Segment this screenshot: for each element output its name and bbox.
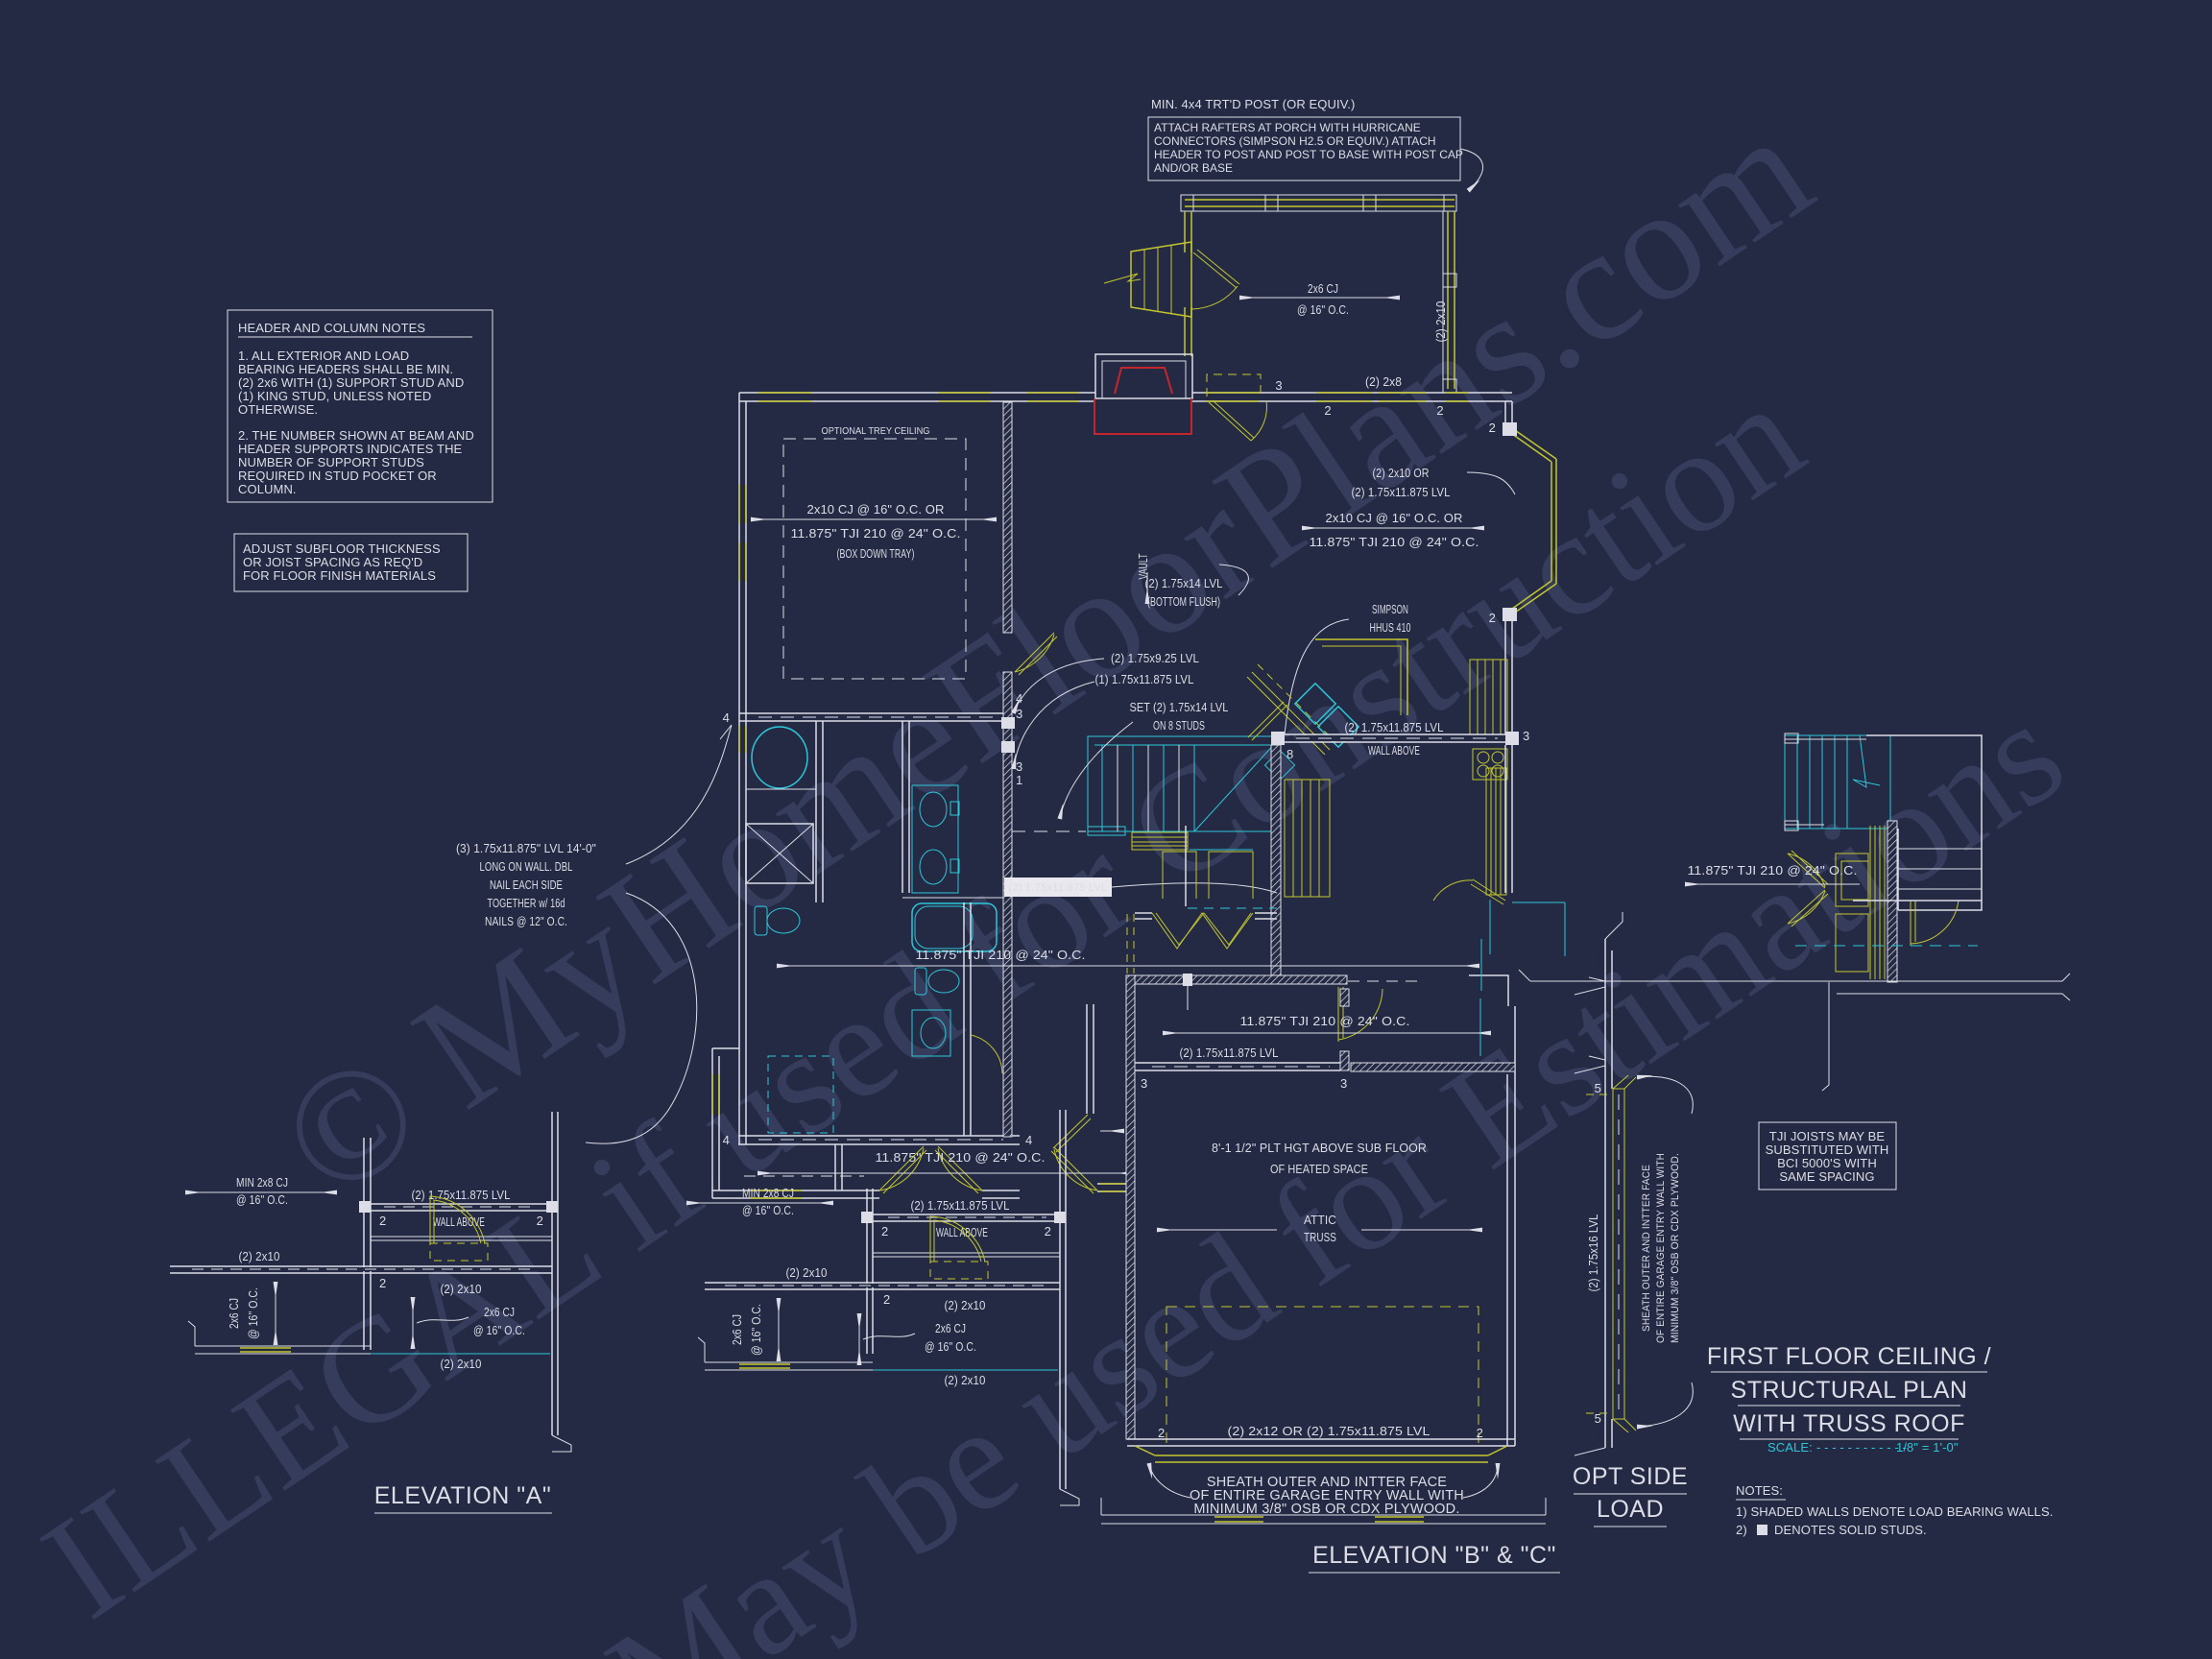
svg-text:CONNECTORS (SIMPSON H2.5 OR EQ: CONNECTORS (SIMPSON H2.5 OR EQUIV.) ATTA… bbox=[1154, 134, 1436, 148]
svg-text:(2) 1.75x11.875 LVL: (2) 1.75x11.875 LVL bbox=[1345, 720, 1444, 734]
svg-text:HEADER AND COLUMN NOTES: HEADER AND COLUMN NOTES bbox=[238, 321, 425, 335]
svg-text:TOGETHER w/ 16d: TOGETHER w/ 16d bbox=[488, 896, 565, 910]
svg-text:2x6 CJ: 2x6 CJ bbox=[227, 1298, 241, 1329]
svg-text:@ 16" O.C.: @ 16" O.C. bbox=[473, 1323, 525, 1337]
svg-text:BCI 5000'S WITH: BCI 5000'S WITH bbox=[1777, 1156, 1877, 1170]
svg-text:ELEVATION "B" & "C": ELEVATION "B" & "C" bbox=[1312, 1542, 1556, 1569]
svg-text:@ 16" O.C.: @ 16" O.C. bbox=[246, 1287, 260, 1339]
svg-text:OF HEATED SPACE: OF HEATED SPACE bbox=[1270, 1162, 1368, 1176]
svg-text:11.875" TJI 210 @ 24" O.C.: 11.875" TJI 210 @ 24" O.C. bbox=[791, 526, 961, 541]
svg-text:FOR FLOOR FINISH MATERIALS: FOR FLOOR FINISH MATERIALS bbox=[243, 568, 436, 583]
svg-text:@ 16" O.C.: @ 16" O.C. bbox=[749, 1304, 763, 1356]
svg-text:HEADER TO POST AND POST TO BAS: HEADER TO POST AND POST TO BASE WITH POS… bbox=[1154, 148, 1463, 161]
svg-text:(2) 1.75x9.25 LVL: (2) 1.75x9.25 LVL bbox=[1111, 651, 1199, 665]
svg-text:SUBSTITUTED WITH: SUBSTITUTED WITH bbox=[1766, 1142, 1889, 1157]
svg-text:WITH TRUSS ROOF: WITH TRUSS ROOF bbox=[1733, 1410, 1965, 1437]
svg-text:11.875" TJI 210 @ 24" O.C.: 11.875" TJI 210 @ 24" O.C. bbox=[876, 1150, 1046, 1165]
svg-text:SHEATH OUTER AND INTTER FACE: SHEATH OUTER AND INTTER FACE bbox=[1641, 1165, 1652, 1332]
svg-text:2: 2 bbox=[1489, 421, 1496, 435]
svg-text:4: 4 bbox=[1025, 1133, 1032, 1147]
svg-text:MIN 2x8 CJ: MIN 2x8 CJ bbox=[742, 1186, 794, 1200]
svg-text:AND/OR BASE: AND/OR BASE bbox=[1154, 161, 1233, 175]
svg-text:@ 16" O.C.: @ 16" O.C. bbox=[1297, 302, 1349, 317]
svg-text:COLUMN.: COLUMN. bbox=[238, 482, 297, 496]
svg-text:(2) 2x12 OR (2) 1.75x11.875 LV: (2) 2x12 OR (2) 1.75x11.875 LVL bbox=[1228, 1424, 1431, 1438]
svg-text:(2) 2x10: (2) 2x10 bbox=[786, 1265, 828, 1280]
svg-text:ON 8 STUDS: ON 8 STUDS bbox=[1153, 718, 1205, 733]
svg-text:(2) 1.75x11.875 LVL: (2) 1.75x11.875 LVL bbox=[412, 1188, 511, 1202]
svg-text:@ 16" O.C.: @ 16" O.C. bbox=[236, 1192, 288, 1207]
svg-text:11.875" TJI 210 @ 24" O.C.: 11.875" TJI 210 @ 24" O.C. bbox=[1240, 1014, 1410, 1028]
svg-text:2x6 CJ: 2x6 CJ bbox=[1308, 281, 1338, 296]
svg-text:(2) 1.75x14 LVL: (2) 1.75x14 LVL bbox=[1145, 576, 1223, 590]
svg-text:STRUCTURAL PLAN: STRUCTURAL PLAN bbox=[1731, 1377, 1968, 1404]
svg-text:(2) 2x10: (2) 2x10 bbox=[945, 1298, 986, 1312]
svg-text:2: 2 bbox=[379, 1276, 386, 1290]
svg-text:2): 2) bbox=[1736, 1523, 1747, 1537]
svg-text:2: 2 bbox=[1158, 1426, 1165, 1440]
svg-text:(3) 1.75x11.875" LVL 14'-0": (3) 1.75x11.875" LVL 14'-0" bbox=[456, 841, 596, 855]
svg-text:11.875" TJI 210 @ 24" O.C.: 11.875" TJI 210 @ 24" O.C. bbox=[1310, 535, 1479, 549]
svg-text:ATTIC: ATTIC bbox=[1304, 1213, 1336, 1227]
svg-text:4: 4 bbox=[723, 710, 730, 725]
svg-text:(2) 1.75x11.875 LVL: (2) 1.75x11.875 LVL bbox=[1009, 882, 1108, 894]
svg-text:8: 8 bbox=[1286, 747, 1293, 761]
svg-text:2. THE NUMBER SHOWN AT BEAM AN: 2. THE NUMBER SHOWN AT BEAM AND bbox=[238, 428, 474, 443]
svg-text:ATTACH RAFTERS AT PORCH WITH H: ATTACH RAFTERS AT PORCH WITH HURRICANE bbox=[1154, 121, 1421, 134]
svg-text:DENOTES SOLID STUDS.: DENOTES SOLID STUDS. bbox=[1774, 1523, 1927, 1537]
svg-text:1: 1 bbox=[1016, 773, 1022, 787]
svg-text:2x6 CJ: 2x6 CJ bbox=[935, 1321, 966, 1335]
svg-text:2: 2 bbox=[537, 1214, 543, 1228]
svg-text:HEADER SUPPORTS INDICATES THE: HEADER SUPPORTS INDICATES THE bbox=[238, 442, 463, 456]
svg-text:(2) 1.75x11.875 LVL: (2) 1.75x11.875 LVL bbox=[1180, 1046, 1279, 1060]
svg-text:2: 2 bbox=[379, 1214, 386, 1228]
svg-text:SCALE:: SCALE: bbox=[1767, 1440, 1813, 1455]
svg-text:5: 5 bbox=[1595, 1081, 1601, 1095]
svg-text:@ 16" O.C.: @ 16" O.C. bbox=[925, 1339, 976, 1354]
svg-text:NAILS @ 12" O.C.: NAILS @ 12" O.C. bbox=[485, 914, 567, 928]
svg-text:SET (2) 1.75x14 LVL: SET (2) 1.75x14 LVL bbox=[1130, 700, 1229, 714]
svg-text:2: 2 bbox=[1045, 1224, 1051, 1238]
svg-text:WALL ABOVE: WALL ABOVE bbox=[1368, 743, 1420, 757]
svg-text:2x10 CJ @ 16" O.C. OR: 2x10 CJ @ 16" O.C. OR bbox=[807, 502, 945, 517]
svg-text:2: 2 bbox=[881, 1224, 888, 1238]
svg-text:ELEVATION "A": ELEVATION "A" bbox=[374, 1482, 551, 1509]
svg-text:(2) 2x8: (2) 2x8 bbox=[1365, 374, 1402, 389]
svg-text:LOAD: LOAD bbox=[1597, 1496, 1664, 1523]
svg-text:2: 2 bbox=[1324, 403, 1331, 418]
svg-text:BEARING HEADERS SHALL BE MIN.: BEARING HEADERS SHALL BE MIN. bbox=[238, 362, 453, 376]
svg-text:2x6 CJ: 2x6 CJ bbox=[484, 1305, 515, 1319]
svg-text:(BOX DOWN TRAY): (BOX DOWN TRAY) bbox=[837, 546, 915, 561]
svg-text:1. ALL EXTERIOR AND LOAD: 1. ALL EXTERIOR AND LOAD bbox=[238, 349, 409, 363]
svg-text:(2) 1.75x11.875 LVL: (2) 1.75x11.875 LVL bbox=[1352, 485, 1451, 499]
svg-text:3: 3 bbox=[1016, 759, 1022, 774]
svg-text:(2) 2x6 WITH (1) SUPPORT STUD: (2) 2x6 WITH (1) SUPPORT STUD AND bbox=[238, 375, 464, 390]
svg-text:(1) KING STUD, UNLESS NOTED: (1) KING STUD, UNLESS NOTED bbox=[238, 389, 431, 403]
svg-text:2: 2 bbox=[1489, 611, 1496, 625]
svg-text:1/8" = 1'-0": 1/8" = 1'-0" bbox=[1896, 1440, 1959, 1455]
svg-text:8'-1 1/2" PLT HGT ABOVE SUB FL: 8'-1 1/2" PLT HGT ABOVE SUB FLOOR bbox=[1212, 1141, 1427, 1155]
svg-text:NUMBER OF SUPPORT STUDS: NUMBER OF SUPPORT STUDS bbox=[238, 455, 424, 469]
svg-text:3: 3 bbox=[1016, 707, 1022, 721]
svg-text:(2) 2x10: (2) 2x10 bbox=[239, 1249, 280, 1263]
svg-text:(BOTTOM FLUSH): (BOTTOM FLUSH) bbox=[1147, 594, 1220, 609]
svg-text:OF ENTIRE GARAGE ENTRY WALL WI: OF ENTIRE GARAGE ENTRY WALL WITH bbox=[1655, 1153, 1667, 1343]
svg-text:- - - - - - - - - - - -: - - - - - - - - - - - - bbox=[1816, 1440, 1907, 1455]
svg-text:(2) 2x10: (2) 2x10 bbox=[441, 1357, 482, 1371]
svg-text:3: 3 bbox=[1523, 729, 1529, 743]
svg-text:TRUSS: TRUSS bbox=[1304, 1230, 1336, 1244]
svg-text:4: 4 bbox=[723, 1133, 730, 1147]
svg-text:LONG ON WALL. DBL: LONG ON WALL. DBL bbox=[480, 859, 573, 874]
svg-text:(2) 1.75x11.875 LVL: (2) 1.75x11.875 LVL bbox=[911, 1198, 1010, 1213]
svg-text:FIRST FLOOR CEILING /: FIRST FLOOR CEILING / bbox=[1707, 1343, 1991, 1370]
svg-text:(2) 1.75x16 LVL: (2) 1.75x16 LVL bbox=[1586, 1214, 1600, 1292]
svg-text:HHUS 410: HHUS 410 bbox=[1370, 620, 1411, 635]
svg-text:SIMPSON: SIMPSON bbox=[1372, 602, 1408, 616]
svg-text:1) SHADED WALLS DENOTE LOAD BE: 1) SHADED WALLS DENOTE LOAD BEARING WALL… bbox=[1736, 1504, 2053, 1519]
svg-text:(1) 1.75x11.875 LVL: (1) 1.75x11.875 LVL bbox=[1095, 672, 1194, 686]
svg-text:MINIMUM 3/8" OSB OR CDX PLYWOO: MINIMUM 3/8" OSB OR CDX PLYWOOD. bbox=[1193, 1502, 1459, 1517]
svg-text:OTHERWISE.: OTHERWISE. bbox=[238, 402, 318, 417]
svg-text:(2) 2x10: (2) 2x10 bbox=[945, 1373, 986, 1387]
svg-text:(2) 2x10: (2) 2x10 bbox=[1433, 301, 1448, 343]
svg-text:(2) 2x10 OR: (2) 2x10 OR bbox=[1373, 466, 1430, 480]
svg-text:REQUIRED IN STUD POCKET OR: REQUIRED IN STUD POCKET OR bbox=[238, 469, 437, 483]
svg-text:2: 2 bbox=[883, 1292, 890, 1307]
svg-text:2: 2 bbox=[1477, 1426, 1483, 1440]
svg-text:2: 2 bbox=[1436, 403, 1443, 418]
svg-text:5: 5 bbox=[1595, 1411, 1601, 1426]
svg-text:OPTIONAL TREY CEILING: OPTIONAL TREY CEILING bbox=[822, 426, 930, 437]
svg-text:11.875" TJI 210 @ 24" O.C.: 11.875" TJI 210 @ 24" O.C. bbox=[916, 948, 1086, 962]
svg-text:MIN. 4x4 TRT'D POST (OR EQUIV.: MIN. 4x4 TRT'D POST (OR EQUIV.) bbox=[1151, 97, 1355, 111]
svg-text:NAIL EACH SIDE: NAIL EACH SIDE bbox=[490, 878, 563, 892]
svg-text:3: 3 bbox=[1275, 378, 1282, 393]
svg-text:@ 16" O.C.: @ 16" O.C. bbox=[742, 1203, 794, 1217]
svg-text:11.875" TJI 210 @ 24" O.C.: 11.875" TJI 210 @ 24" O.C. bbox=[1688, 863, 1858, 878]
svg-text:3: 3 bbox=[1340, 1076, 1347, 1091]
svg-text:MIN 2x8 CJ: MIN 2x8 CJ bbox=[236, 1175, 288, 1190]
svg-text:2x6 CJ: 2x6 CJ bbox=[730, 1314, 744, 1345]
svg-text:WALL ABOVE: WALL ABOVE bbox=[433, 1214, 485, 1229]
svg-text:OPT SIDE: OPT SIDE bbox=[1573, 1463, 1688, 1490]
svg-text:TJI JOISTS MAY BE: TJI JOISTS MAY BE bbox=[1769, 1129, 1886, 1143]
svg-text:NOTES:: NOTES: bbox=[1736, 1483, 1783, 1498]
svg-text:ADJUST SUBFLOOR THICKNESS: ADJUST SUBFLOOR THICKNESS bbox=[243, 541, 441, 556]
svg-text:MINIMUM 3/8" OSB OR CDX PLYWOO: MINIMUM 3/8" OSB OR CDX PLYWOOD. bbox=[1670, 1153, 1681, 1343]
svg-text:OR JOIST SPACING AS REQ'D: OR JOIST SPACING AS REQ'D bbox=[243, 555, 422, 569]
svg-text:3: 3 bbox=[1141, 1076, 1147, 1091]
svg-text:(2) 2x10: (2) 2x10 bbox=[441, 1282, 482, 1296]
svg-text:2x10 CJ @ 16" O.C. OR: 2x10 CJ @ 16" O.C. OR bbox=[1326, 511, 1463, 525]
svg-text:SAME SPACING: SAME SPACING bbox=[1779, 1169, 1874, 1184]
